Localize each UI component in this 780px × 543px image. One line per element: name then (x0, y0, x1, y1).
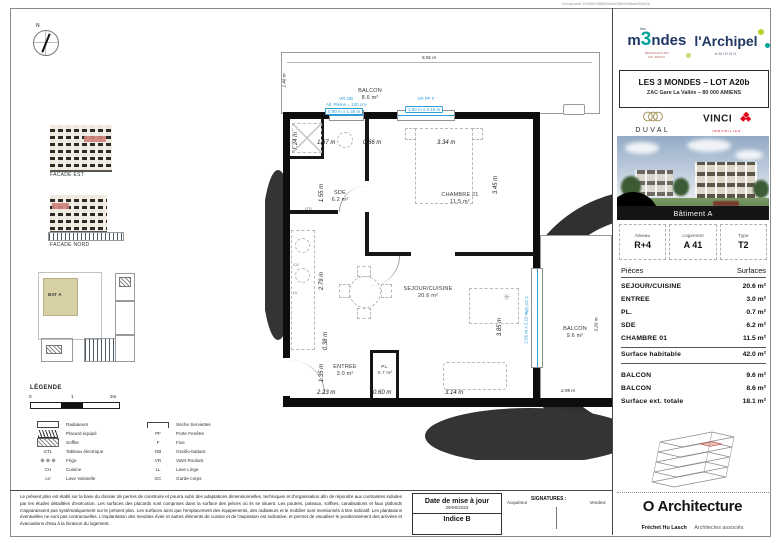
legend-item: Soffite (30, 438, 140, 447)
compass-north-label: N (36, 23, 40, 29)
furniture-sink (295, 238, 310, 253)
fridge-symbol-icon: ⊛ ⊛ ⊛ (40, 458, 55, 464)
window-annotation: VR PF F (393, 96, 459, 101)
archipel-dot-icon (758, 29, 764, 35)
surface-row: PL. 0.7 m² (621, 309, 766, 316)
scale-bar-segment (61, 403, 83, 408)
legend-code: CU (45, 467, 52, 472)
legend-label: Fixe (176, 440, 185, 445)
legend-code: GTL (44, 449, 53, 454)
furniture-nightstand (405, 128, 416, 140)
date-block: Date de mise à jour 29/06/2023 Indice B (412, 493, 502, 535)
indice-label: Indice B (413, 513, 501, 523)
legend-code: GC (155, 476, 162, 481)
room-area: 0.7 m² (378, 370, 392, 375)
lot-title: LES 3 MONDES – LOT A20b (620, 77, 768, 87)
surface-value: 9.6 m² (746, 372, 766, 379)
surface-total-value: 42.0 m² (743, 351, 766, 358)
surface-total-row: Surface habitable 42.0 m² (621, 351, 766, 358)
furniture-bed (415, 128, 473, 204)
surface-row: SEJOUR/CUISINE 20.6 m² (621, 283, 766, 290)
unit-header: Niveau (635, 234, 650, 239)
duval-rings-icon (640, 111, 666, 122)
scale-bar (30, 402, 120, 409)
table-rule (621, 363, 766, 364)
dim-balcony-top-width: 5.91 m (420, 55, 438, 60)
furniture-washbasin (337, 132, 353, 148)
archipel-city: AMIENS (694, 51, 757, 56)
unit-value: R+4 (634, 240, 651, 250)
table-rule (621, 277, 766, 278)
furniture-chair (357, 266, 371, 277)
surface-label: SEJOUR/CUISINE (621, 283, 681, 290)
legend-code: PF (155, 431, 161, 436)
furniture-dining-table (349, 276, 381, 308)
duval-logo: DUVAL (635, 109, 670, 134)
room-name: BALCON (563, 326, 587, 332)
legend-item: PF Porte Fenêtre (140, 429, 250, 438)
surface-row: SDE 6.2 m² (621, 322, 766, 329)
closet-symbol-icon (38, 430, 58, 438)
legend-item: Placard équipé (30, 429, 140, 438)
unit-value: T2 (738, 240, 749, 250)
legend-code: F (157, 440, 160, 445)
photo-building-right (695, 162, 757, 198)
title-block: LES 3 MONDES – LOT A20b ZAC Gare La Vall… (619, 70, 769, 108)
legend-item: LV Lave Vaisselle (30, 474, 140, 483)
surface-label: BALCON (621, 372, 651, 379)
dim-balcony-right-height: 3.26 m (594, 317, 599, 331)
archipel-dot-icon (765, 43, 770, 48)
room-label-sde: SDE 6.2 m² (320, 190, 360, 204)
dim-mid-height: 0.38 m (323, 332, 329, 350)
unit-info: Niveau R+4 Logement A 41 Type T2 (619, 224, 767, 260)
wall-hall (365, 212, 369, 256)
dim-entree-width: 2.23 m (317, 390, 335, 396)
dim-sde-height: 1.55 m (319, 184, 325, 202)
mondes-tagline: DESTINATION DU M3CO (627, 51, 686, 59)
building-photo: Bâtiment A (617, 136, 769, 220)
unit-cell-niveau: Niveau R+4 (619, 224, 666, 260)
legend-item: Sèche Serviettes (140, 420, 250, 429)
dim-placard-width: 0.60 m (373, 390, 391, 396)
furniture-chair (339, 284, 350, 298)
room-area: 9.6 m² (567, 333, 584, 339)
mondes-ndes: ndes (651, 32, 686, 49)
buyer-label: Acquéreur (507, 500, 527, 505)
legend-label: Radiateurs (66, 422, 88, 427)
wall-bottom (283, 398, 612, 407)
facade-est-drawing (50, 125, 112, 172)
vinci-symbol-icon (740, 110, 751, 128)
surface-value: 6.2 m² (746, 322, 766, 329)
legend-label: Cuisine (66, 467, 81, 472)
surface-label: BALCON (621, 385, 651, 392)
site-bat-a-label: BAT A (48, 292, 62, 297)
site-parking (84, 338, 116, 362)
plan-sheet: Docaposte 209d9e2f8866/e6c0f8e99e8a8d93d… (0, 0, 780, 543)
furniture-shower (292, 123, 322, 153)
surface-label: ENTREE (621, 296, 650, 303)
cloud (735, 150, 763, 160)
legal-text: Le présent plan est établi sur la base d… (20, 494, 402, 528)
surfaces-header-right: Surfaces (737, 266, 766, 275)
signature-divider (556, 507, 557, 529)
watermark-shape (425, 408, 612, 460)
cloud (687, 139, 731, 152)
window-size-chip: 0.90 m x 1.35 m (325, 108, 363, 115)
furniture-chair (357, 308, 371, 319)
room-label-placard: PL. 0.7 m² (371, 364, 399, 375)
window-annotation: 2.05 m x 2.15 m (524, 293, 529, 363)
unit-header: Type (738, 234, 748, 239)
surface-value: 3.0 m² (746, 296, 766, 303)
surface-ext-total-row: Surface ext. totale 18.1 m² (621, 398, 766, 405)
site-plan: BAT A (36, 268, 136, 368)
legend-label: Frigo (66, 458, 76, 463)
date-value: 29/06/2023 (413, 505, 501, 510)
dim-hall-width: 0.66 m (363, 140, 381, 146)
mondes-3: 3 (641, 29, 652, 50)
dim-chambre-height: 3.45 m (493, 176, 499, 194)
wall-chambre-bottom (455, 252, 535, 256)
unit-header: Logement (682, 234, 703, 239)
surface-value: 20.6 m² (743, 283, 766, 290)
right-column-divider (612, 8, 613, 535)
duval-name: DUVAL (635, 127, 670, 134)
architect-subline: Fréchet Hu Lasch Architectes associés (615, 516, 770, 534)
cloud (625, 142, 659, 154)
architect-suffix: Architectes associés (694, 525, 743, 531)
dim-entree-height: 1.35 m (319, 364, 325, 382)
legend-code: VR (155, 458, 161, 463)
gtl-label: GTL (305, 206, 313, 211)
site-block (115, 335, 135, 362)
legend-label: Soffite (66, 440, 79, 445)
room-name: PL. (381, 364, 389, 369)
furniture-nightstand (472, 128, 483, 140)
architect-divider (617, 492, 769, 493)
photo-caption: Bâtiment A (673, 209, 712, 218)
surfaces-header-left: Pièces (621, 266, 643, 275)
axonometric-drawing (642, 420, 738, 488)
surface-label: PL. (621, 309, 632, 316)
surface-ext-total-label: Surface ext. totale (621, 398, 683, 405)
footer-divider (10, 490, 612, 491)
legend-label: Garde-corps (176, 476, 202, 481)
facade-est-highlight (84, 136, 106, 142)
site-block-detail (119, 277, 131, 287)
site-block (115, 273, 135, 301)
mondes-les: les (640, 26, 645, 31)
photo-tree (673, 178, 689, 196)
towel-rail-symbol-icon (147, 422, 169, 428)
compass-needle-icon (41, 33, 50, 52)
signatures-label: SIGNATURES : (531, 496, 566, 502)
archipel-name: l'Archipel (694, 33, 757, 49)
architect-block: O Architecture Fréchet Hu Lasch Architec… (615, 498, 770, 534)
architect-partners: Fréchet Hu Lasch (642, 525, 687, 531)
facade-est-label: FACADE EST (50, 172, 84, 178)
legend-left-column: Radiateurs Placard équipé Soffite GTL Ta… (30, 420, 140, 483)
radiator-symbol-icon (37, 421, 59, 428)
site-block (41, 338, 73, 362)
legend-item: Radiateurs (30, 420, 140, 429)
room-label-entree: ENTREE 3.0 m² (327, 364, 363, 378)
photo-caption-bar: Bâtiment A (617, 206, 769, 220)
balcony-right (540, 235, 612, 400)
room-label-balcon-right: BALCON 9.6 m² (550, 326, 600, 340)
legend-title: LÉGENDE (30, 385, 62, 391)
signatures-block: SIGNATURES : Acquéreur Vendeur (503, 493, 610, 533)
legend-label: Lave Vaisselle (66, 476, 95, 481)
site-bat-a: BAT A (43, 278, 78, 316)
room-area: 3.0 m² (337, 371, 354, 377)
north-compass (33, 30, 59, 56)
legend-item: GTL Tableau électrique (30, 447, 140, 456)
legend-label: Placard équipé (66, 431, 97, 436)
brand-logos: les m3ndes DESTINATION DU M3CO l'Archipe… (615, 20, 770, 68)
facade-nord-drawing (50, 195, 107, 233)
room-area: 20.6 m² (418, 293, 438, 299)
surfaces-table: Pièces Surfaces SEJOUR/CUISINE 20.6 m² E… (621, 266, 766, 416)
window-annotation: All. Pleine = 100 cm (313, 102, 379, 107)
furniture-chair (381, 284, 392, 298)
legend-right-column: Sèche Serviettes PF Porte Fenêtre F Fixe… (140, 420, 250, 483)
legend-item: OB Oscillo-battant (140, 447, 250, 456)
surfaces-header: Pièces Surfaces (621, 266, 766, 275)
legend-code: LV (45, 476, 50, 481)
developer-logos: DUVAL VINCI IMMOBILIER (619, 109, 767, 134)
facade-nord-label: FACADE NORD (50, 242, 89, 248)
table-rule (621, 347, 766, 348)
soffit-symbol-icon (37, 438, 59, 447)
photo-tree (753, 180, 769, 198)
legend-item: ⊛ ⊛ ⊛ Frigo (30, 456, 140, 465)
legend-item: GC Garde-corps (140, 474, 250, 483)
unit-cell-logement: Logement A 41 (669, 224, 716, 260)
dim-balcony-top-depth: 1.46 m (282, 73, 287, 87)
seller-label: Vendeur (590, 500, 606, 505)
facade-nord-ground (48, 232, 124, 241)
dim-sejour-width: 3.14 m (445, 390, 463, 396)
mondes-logo: les m3ndes DESTINATION DU M3CO (627, 29, 686, 59)
legend-label: Volet Roulant (176, 458, 203, 463)
archipel-dot-icon (686, 53, 691, 58)
facade-nord-highlight (52, 203, 69, 209)
furniture-rug (469, 288, 519, 324)
surface-label: CHAMBRE 01 (621, 335, 667, 342)
legend-code: LL (155, 467, 160, 472)
wall-sde-chambre (365, 119, 369, 181)
balcony-divider-chip (563, 104, 585, 115)
vinci-sub: IMMOBILIER (703, 129, 751, 133)
lot-subtitle: ZAC Gare La Vallée – 80 000 AMIENS (620, 90, 768, 96)
architect-name: O Architecture (615, 498, 770, 515)
floor-plan: 5.91 m 1.46 m BALCON 8.6 m² BALCON 9.6 m… (265, 40, 612, 460)
room-name: BALCON (358, 88, 382, 94)
surface-row: ENTREE 3.0 m² (621, 296, 766, 303)
wall-placard (370, 350, 399, 353)
entrance-opening (283, 358, 290, 396)
surface-row: CHAMBRE 01 11.5 m² (621, 335, 766, 342)
dim-kitchen-height: 2.79 m (319, 272, 325, 290)
unit-value: A 41 (684, 240, 703, 250)
surface-value: 8.6 m² (746, 385, 766, 392)
surface-label: SDE (621, 322, 636, 329)
furniture-sofa (443, 362, 507, 390)
surface-ext-row: BALCON 9.6 m² (621, 372, 766, 379)
scale-0: 0 (29, 394, 32, 399)
surface-ext-total-value: 18.1 m² (743, 398, 766, 405)
wall-sde-bottom (290, 210, 338, 214)
mondes-tagline-2: DU M3CO (649, 55, 666, 59)
room-name: SEJOUR/CUISINE (404, 286, 453, 292)
site-block-detail (46, 345, 62, 354)
date-label: Date de mise à jour (413, 498, 501, 505)
room-name: ENTREE (333, 364, 357, 370)
legend-item: CU Cuisine (30, 465, 140, 474)
legend-item: VR Volet Roulant (140, 456, 250, 465)
room-name: SDE (334, 190, 346, 196)
surface-total-label: Surface habitable (621, 351, 681, 358)
legend-label: Lave Linge (176, 467, 198, 472)
legend-label: Sèche Serviettes (176, 422, 211, 427)
plant-icon: ✳ (503, 292, 511, 303)
scale-1: 1 (71, 394, 74, 399)
dimension-line (287, 62, 592, 63)
unit-cell-type: Type T2 (720, 224, 767, 260)
legend-code: OB (155, 449, 162, 454)
doc-reference: Docaposte 209d9e2f8866/e6c0f8e99e8a8d93d… (562, 1, 650, 6)
photo-building-left (635, 170, 673, 196)
wall-bath-corner (290, 156, 324, 159)
dim-balcony-right-width: 2.95 m (561, 388, 575, 393)
legend-label: Oscillo-battant (176, 449, 205, 454)
legend-label: Tableau électrique (66, 449, 103, 454)
site-block (115, 301, 135, 335)
surface-ext-row: BALCON 8.6 m² (621, 385, 766, 392)
surface-value: 0.7 m² (746, 309, 766, 316)
legend-label: Porte Fenêtre (176, 431, 204, 436)
room-area: 6.2 m² (332, 197, 349, 203)
window-sejour-balcony (531, 268, 543, 368)
legend-item: LL Lave Linge (140, 465, 250, 474)
mondes-m: m (627, 32, 640, 49)
room-label-sejour: SEJOUR/CUISINE 20.6 m² (390, 286, 466, 300)
scale-2m: 2m (110, 394, 116, 399)
archipel-logo: l'Archipel AMIENS (694, 33, 757, 56)
furniture-hob (295, 268, 310, 283)
window-annotation: VR OB (313, 96, 379, 101)
surface-value: 11.5 m² (743, 335, 766, 342)
vinci-name: VINCI (703, 114, 732, 125)
legend-item: F Fixe (140, 438, 250, 447)
vinci-logo: VINCI IMMOBILIER (703, 110, 751, 132)
window-size-chip: 1.80 m x 2.15 m (405, 106, 443, 113)
